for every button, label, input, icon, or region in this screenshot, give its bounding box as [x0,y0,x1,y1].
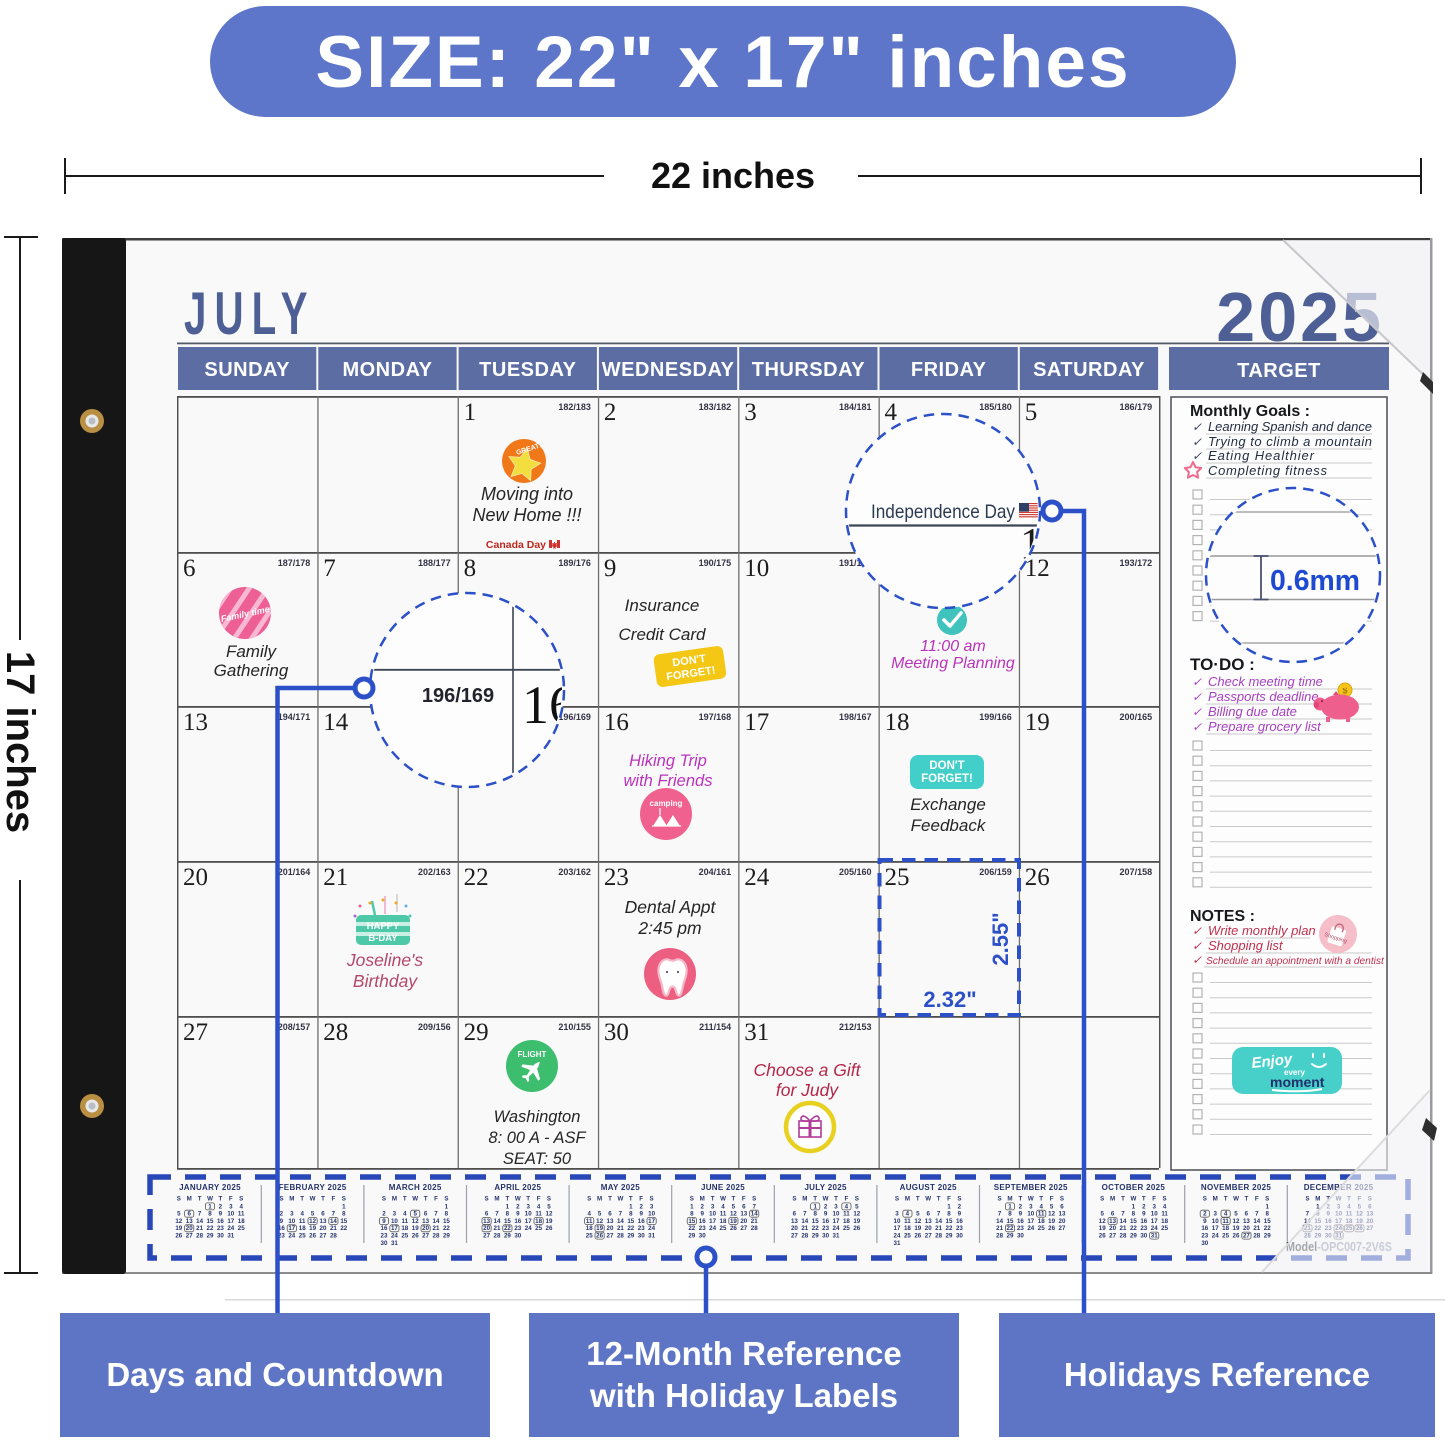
svg-text:25: 25 [1222,1233,1229,1240]
svg-text:DON'T: DON'T [929,760,964,772]
svg-text:3: 3 [1029,1203,1033,1210]
svg-text:185/180: 185/180 [979,402,1012,412]
svg-text:24: 24 [1151,1225,1158,1232]
svg-text:S: S [792,1196,796,1203]
svg-text:M: M [1007,1196,1012,1203]
svg-text:29: 29 [1007,1233,1014,1240]
svg-text:5: 5 [1100,1211,1104,1218]
svg-text:FLIGHT: FLIGHT [518,1050,547,1059]
svg-text:28: 28 [330,1233,337,1240]
svg-text:18: 18 [299,1225,306,1232]
svg-text:24: 24 [709,1225,716,1232]
svg-text:28: 28 [751,1225,758,1232]
svg-text:✓: ✓ [1192,420,1202,434]
svg-text:16: 16 [699,1218,706,1225]
svg-text:1: 1 [208,1203,212,1210]
svg-text:T: T [813,1196,817,1203]
svg-text:31: 31 [227,1233,234,1240]
svg-text:7: 7 [1255,1211,1259,1218]
svg-text:18: 18 [720,1218,727,1225]
svg-text:13: 13 [1243,1218,1250,1225]
svg-text:31: 31 [833,1233,840,1240]
svg-text:MONDAY: MONDAY [342,359,432,381]
svg-text:S: S [342,1196,346,1203]
svg-text:T: T [219,1196,223,1203]
svg-text:12: 12 [546,1211,553,1218]
svg-text:23: 23 [1140,1225,1147,1232]
svg-text:2: 2 [280,1211,284,1218]
svg-text:11:00 am: 11:00 am [920,638,986,655]
svg-text:23: 23 [1201,1233,1208,1240]
svg-text:11: 11 [843,1211,850,1218]
svg-text:200/165: 200/165 [1120,712,1153,722]
svg-text:18: 18 [535,1218,542,1225]
svg-text:M: M [289,1196,294,1203]
svg-text:25: 25 [401,1233,408,1240]
svg-text:10: 10 [744,555,769,582]
svg-text:T: T [711,1196,715,1203]
svg-text:187/178: 187/178 [278,558,311,568]
svg-text:15: 15 [207,1218,214,1225]
svg-text:✓: ✓ [1192,720,1202,734]
svg-text:14: 14 [617,1218,624,1225]
svg-text:12: 12 [596,1218,603,1225]
svg-text:4: 4 [906,1211,910,1218]
svg-text:12: 12 [1233,1218,1240,1225]
svg-text:23: 23 [638,1225,645,1232]
svg-text:15: 15 [627,1218,634,1225]
svg-text:7: 7 [752,1203,756,1210]
svg-text:10: 10 [1151,1211,1158,1218]
svg-text:Canada Day: Canada Day [486,539,546,551]
svg-text:with Holiday Labels: with Holiday Labels [589,1377,898,1414]
svg-text:29: 29 [207,1233,214,1240]
svg-text:5: 5 [547,1203,551,1210]
svg-text:18: 18 [401,1225,408,1232]
svg-text:27: 27 [186,1233,193,1240]
svg-text:207/158: 207/158 [1120,867,1153,877]
svg-text:5: 5 [916,1211,920,1218]
svg-text:182/183: 182/183 [558,402,591,412]
svg-text:W: W [823,1196,829,1203]
svg-text:21: 21 [617,1225,624,1232]
svg-text:21: 21 [323,864,348,891]
svg-text:23: 23 [514,1225,521,1232]
svg-text:7: 7 [1121,1211,1125,1218]
svg-text:16: 16 [1201,1225,1208,1232]
svg-text:28: 28 [494,1233,501,1240]
svg-text:26: 26 [175,1233,182,1240]
svg-text:20: 20 [740,1218,747,1225]
svg-text:20: 20 [186,1225,193,1232]
svg-text:16: 16 [604,709,629,736]
svg-text:12-Month Reference: 12-Month Reference [586,1335,901,1372]
svg-text:T: T [321,1196,325,1203]
svg-text:29: 29 [443,1233,450,1240]
svg-text:25: 25 [586,1233,593,1240]
svg-text:21: 21 [996,1225,1003,1232]
svg-text:W: W [1233,1196,1239,1203]
svg-text:W: W [925,1196,931,1203]
svg-text:13: 13 [186,1218,193,1225]
svg-text:196/169: 196/169 [558,712,591,722]
svg-text:183/182: 183/182 [699,402,732,412]
svg-text:8: 8 [208,1211,212,1218]
svg-text:23: 23 [381,1233,388,1240]
svg-text:S: S [752,1196,756,1203]
svg-text:F: F [845,1196,849,1203]
svg-text:F: F [537,1196,541,1203]
svg-text:Monthly Goals :: Monthly Goals : [1190,403,1310,420]
svg-text:13: 13 [320,1218,327,1225]
svg-text:18: 18 [1161,1218,1168,1225]
svg-text:22: 22 [207,1225,214,1232]
svg-text:NOVEMBER 2025: NOVEMBER 2025 [1201,1183,1271,1192]
svg-text:0.6mm: 0.6mm [1270,565,1360,597]
svg-text:28: 28 [1120,1233,1127,1240]
svg-text:5: 5 [177,1211,181,1218]
svg-text:✓: ✓ [1192,449,1202,463]
svg-text:31: 31 [1151,1233,1158,1240]
svg-text:26: 26 [853,1225,860,1232]
svg-text:23: 23 [604,864,629,891]
svg-text:W: W [515,1196,521,1203]
svg-text:19: 19 [1048,1218,1055,1225]
svg-text:Schedule an appointment with a: Schedule an appointment with a dentist [1206,956,1385,967]
svg-text:S: S [177,1196,181,1203]
svg-text:6: 6 [183,555,196,582]
svg-text:22 inches: 22 inches [651,155,815,196]
svg-text:24: 24 [1027,1225,1034,1232]
svg-text:2: 2 [516,1203,520,1210]
svg-text:4: 4 [1163,1203,1167,1210]
svg-text:17: 17 [648,1218,655,1225]
svg-text:27: 27 [1059,1225,1066,1232]
svg-text:23: 23 [217,1225,224,1232]
svg-text:8: 8 [947,1211,951,1218]
svg-text:4: 4 [537,1203,541,1210]
svg-text:23: 23 [956,1225,963,1232]
svg-text:24: 24 [744,864,770,891]
svg-text:S: S [957,1196,961,1203]
svg-text:29: 29 [812,1233,819,1240]
svg-text:Holidays Reference: Holidays Reference [1064,1356,1370,1393]
svg-text:15: 15 [443,1218,450,1225]
svg-text:25: 25 [1161,1225,1168,1232]
svg-text:JULY: JULY [184,280,316,347]
svg-text:25: 25 [299,1233,306,1240]
svg-text:T: T [506,1196,510,1203]
svg-text:209/156: 209/156 [418,1022,451,1032]
svg-text:W: W [1028,1196,1034,1203]
svg-text:2: 2 [958,1203,962,1210]
svg-text:199/166: 199/166 [979,712,1012,722]
svg-text:FEBRUARY 2025: FEBRUARY 2025 [279,1183,347,1192]
svg-text:24: 24 [894,1233,901,1240]
svg-text:12: 12 [1025,555,1050,582]
svg-text:6: 6 [793,1211,797,1218]
svg-text:31: 31 [744,1019,769,1046]
svg-text:17 inches: 17 inches [0,651,42,833]
svg-text:3: 3 [711,1203,715,1210]
svg-text:12: 12 [1048,1211,1055,1218]
svg-text:19: 19 [1233,1225,1240,1232]
svg-text:3: 3 [1152,1203,1156,1210]
svg-text:Gathering: Gathering [214,661,289,680]
svg-text:8: 8 [813,1211,817,1218]
svg-text:21: 21 [1253,1225,1260,1232]
svg-text:Moving into: Moving into [481,484,573,504]
svg-text:1: 1 [690,1203,694,1210]
svg-text:20: 20 [483,1225,490,1232]
svg-text:3: 3 [229,1203,233,1210]
svg-text:M: M [700,1196,705,1203]
svg-text:3: 3 [744,399,757,426]
svg-text:S: S [1305,1196,1309,1203]
svg-text:T: T [1245,1196,1249,1203]
svg-text:15: 15 [946,1218,953,1225]
svg-text:MARCH 2025: MARCH 2025 [389,1183,442,1192]
svg-text:8: 8 [342,1211,346,1218]
svg-text:9: 9 [604,555,617,582]
svg-text:9: 9 [958,1211,962,1218]
svg-text:1: 1 [506,1203,510,1210]
svg-text:193/172: 193/172 [1120,558,1153,568]
svg-text:9: 9 [1019,1211,1023,1218]
svg-text:31: 31 [894,1240,901,1247]
svg-text:188/177: 188/177 [418,558,451,568]
svg-text:15: 15 [1130,1218,1137,1225]
svg-text:8: 8 [1008,1211,1012,1218]
svg-text:F: F [742,1196,746,1203]
svg-text:3: 3 [290,1211,294,1218]
svg-text:190/175: 190/175 [699,558,732,568]
svg-text:186/179: 186/179 [1120,402,1153,412]
svg-text:20: 20 [183,864,208,891]
svg-text:27: 27 [925,1233,932,1240]
svg-text:FORGET!: FORGET! [921,773,973,785]
svg-text:Prepare grocery list: Prepare grocery list [1208,719,1322,734]
svg-text:TARGET: TARGET [1237,360,1321,382]
svg-text:Dental Appt: Dental Appt [625,897,717,917]
svg-text:7: 7 [1306,1211,1310,1218]
svg-text:30: 30 [1140,1233,1147,1240]
svg-text:18: 18 [904,1225,911,1232]
svg-text:APRIL 2025: APRIL 2025 [494,1183,541,1192]
svg-text:T: T [1039,1196,1043,1203]
svg-text:31: 31 [391,1240,398,1247]
svg-text:12: 12 [914,1218,921,1225]
svg-text:26: 26 [730,1225,737,1232]
svg-text:9: 9 [700,1211,704,1218]
svg-text:S: S [1203,1196,1207,1203]
svg-text:T: T [526,1196,530,1203]
svg-text:14: 14 [330,1218,337,1225]
svg-text:25: 25 [1038,1225,1045,1232]
svg-text:20: 20 [422,1225,429,1232]
svg-text:Trying to climb a mountain: Trying to climb a mountain [1208,434,1372,449]
svg-text:W: W [207,1196,213,1203]
svg-text:F: F [639,1196,643,1203]
svg-text:2: 2 [382,1211,386,1218]
svg-text:20: 20 [1109,1225,1116,1232]
svg-text:27: 27 [740,1225,747,1232]
svg-text:2: 2 [604,399,617,426]
svg-text:16: 16 [1017,1218,1024,1225]
svg-text:25: 25 [238,1225,245,1232]
svg-text:S: S [855,1196,859,1203]
svg-text:24: 24 [648,1225,655,1232]
svg-text:for Judy: for Judy [776,1080,839,1100]
svg-text:14: 14 [935,1218,942,1225]
svg-text:T: T [1142,1196,1146,1203]
svg-text:S: S [650,1196,654,1203]
svg-text:7: 7 [434,1211,438,1218]
svg-text:F: F [1152,1196,1156,1203]
svg-text:Billing due date: Billing due date [1208,704,1297,719]
svg-text:2: 2 [1142,1203,1146,1210]
svg-text:30: 30 [638,1233,645,1240]
svg-text:Eating Healthier: Eating Healthier [1208,448,1315,463]
svg-text:JUNE 2025: JUNE 2025 [701,1183,745,1192]
svg-text:17: 17 [525,1218,532,1225]
svg-text:17: 17 [391,1225,398,1232]
svg-text:T: T [198,1196,202,1203]
svg-text:5: 5 [732,1203,736,1210]
svg-text:6: 6 [424,1211,428,1218]
svg-text:7: 7 [998,1211,1002,1218]
svg-text:14: 14 [323,709,349,736]
svg-text:10: 10 [1027,1211,1034,1218]
svg-text:5: 5 [855,1203,859,1210]
svg-text:3: 3 [650,1203,654,1210]
svg-text:Exchange: Exchange [910,795,986,814]
svg-text:2: 2 [219,1203,223,1210]
svg-text:203/162: 203/162 [558,867,591,877]
svg-text:6: 6 [742,1203,746,1210]
svg-text:24: 24 [288,1233,295,1240]
svg-text:2: 2 [1203,1211,1207,1218]
svg-text:21: 21 [433,1225,440,1232]
svg-text:3: 3 [393,1211,397,1218]
svg-text:MAY 2025: MAY 2025 [601,1183,641,1192]
svg-text:1: 1 [947,1203,951,1210]
svg-text:W: W [310,1196,316,1203]
svg-text:Choose a Gift: Choose a Gift [754,1060,862,1080]
svg-text:14: 14 [996,1218,1003,1225]
svg-text:211/154: 211/154 [699,1022,731,1032]
svg-text:3: 3 [834,1203,838,1210]
svg-text:8: 8 [445,1211,449,1218]
svg-text:7: 7 [198,1211,202,1218]
svg-text:S: S [382,1196,386,1203]
svg-text:16: 16 [822,1218,829,1225]
svg-text:WEDNESDAY: WEDNESDAY [602,359,735,381]
svg-text:19: 19 [914,1225,921,1232]
svg-text:S: S [895,1196,899,1203]
svg-text:24: 24 [1212,1233,1219,1240]
svg-text:Feedback: Feedback [911,816,987,835]
svg-text:11: 11 [402,1218,409,1225]
svg-text:21: 21 [935,1225,942,1232]
svg-text:19: 19 [412,1225,419,1232]
svg-text:S: S [1163,1196,1167,1203]
svg-text:27: 27 [320,1233,327,1240]
svg-text:13: 13 [483,1218,490,1225]
svg-text:2: 2 [824,1203,828,1210]
svg-text:27: 27 [607,1233,614,1240]
svg-text:28: 28 [196,1233,203,1240]
svg-text:27: 27 [483,1233,490,1240]
svg-text:✓: ✓ [1192,924,1202,938]
svg-text:Passports deadline: Passports deadline [1208,689,1319,704]
svg-text:9: 9 [824,1211,828,1218]
svg-text:Washington: Washington [494,1108,581,1126]
svg-text:13: 13 [925,1218,932,1225]
svg-text:Days and Countdown: Days and Countdown [106,1356,443,1393]
svg-text:201/164: 201/164 [278,867,311,877]
svg-text:4: 4 [845,1203,849,1210]
svg-text:9: 9 [1203,1218,1207,1225]
svg-text:1: 1 [1265,1203,1269,1210]
svg-text:SUNDAY: SUNDAY [204,359,290,381]
svg-text:6: 6 [321,1211,325,1218]
svg-text:28: 28 [617,1233,624,1240]
svg-text:15: 15 [340,1218,347,1225]
svg-text:2: 2 [1019,1203,1023,1210]
svg-text:15: 15 [1264,1218,1271,1225]
svg-text:Hiking Trip: Hiking Trip [629,752,707,770]
svg-text:Learning Spanish and dance: Learning Spanish and dance [1208,419,1372,434]
svg-text:28: 28 [1253,1233,1260,1240]
svg-text:✓: ✓ [1192,705,1202,719]
svg-text:OCTOBER 2025: OCTOBER 2025 [1102,1183,1166,1192]
svg-text:17: 17 [709,1218,716,1225]
svg-text:3: 3 [526,1203,530,1210]
svg-text:4: 4 [239,1203,243,1210]
svg-text:21: 21 [801,1225,808,1232]
svg-text:22: 22 [627,1225,634,1232]
svg-text:1: 1 [629,1203,633,1210]
svg-text:14: 14 [196,1218,203,1225]
svg-text:11: 11 [299,1218,306,1225]
svg-text:26: 26 [1025,864,1050,891]
svg-text:26: 26 [1099,1233,1106,1240]
svg-text:T: T [629,1196,633,1203]
svg-text:27: 27 [422,1233,429,1240]
svg-text:10: 10 [709,1211,716,1218]
svg-text:30: 30 [604,1019,629,1046]
svg-text:184/181: 184/181 [839,402,872,412]
svg-text:T: T [608,1196,612,1203]
svg-text:16: 16 [1140,1218,1147,1225]
svg-text:25: 25 [843,1225,850,1232]
svg-text:6: 6 [1111,1211,1115,1218]
svg-text:HAPPY: HAPPY [367,921,400,932]
svg-text:16: 16 [514,1218,521,1225]
svg-text:Birthday: Birthday [353,971,418,991]
svg-text:21: 21 [1120,1225,1127,1232]
svg-text:19: 19 [596,1225,603,1232]
svg-text:29: 29 [688,1233,695,1240]
svg-text:✓: ✓ [1192,690,1202,704]
svg-text:19: 19 [175,1225,182,1232]
svg-text:1: 1 [445,1203,449,1210]
svg-text:11: 11 [1161,1211,1168,1218]
svg-text:29: 29 [464,1019,489,1046]
svg-text:T: T [1224,1196,1228,1203]
svg-text:30: 30 [822,1233,829,1240]
